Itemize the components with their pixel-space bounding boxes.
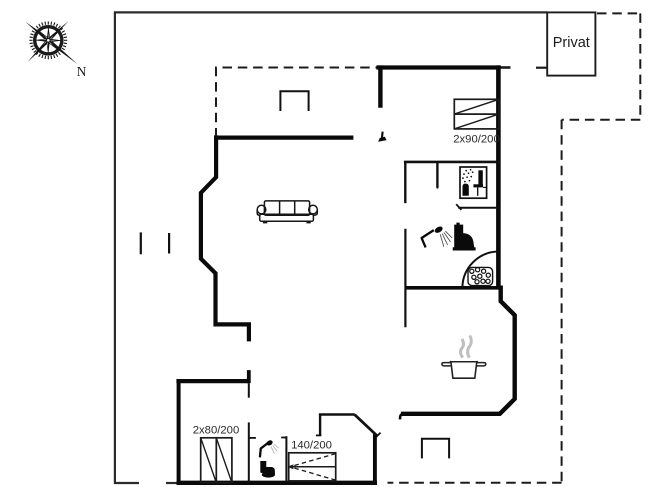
svg-text:140/200: 140/200 xyxy=(291,439,332,451)
svg-text:Privat: Privat xyxy=(553,35,590,51)
svg-text:2x90/200: 2x90/200 xyxy=(453,134,499,146)
svg-text:N: N xyxy=(77,64,87,79)
svg-text:2x80/200: 2x80/200 xyxy=(193,424,239,436)
